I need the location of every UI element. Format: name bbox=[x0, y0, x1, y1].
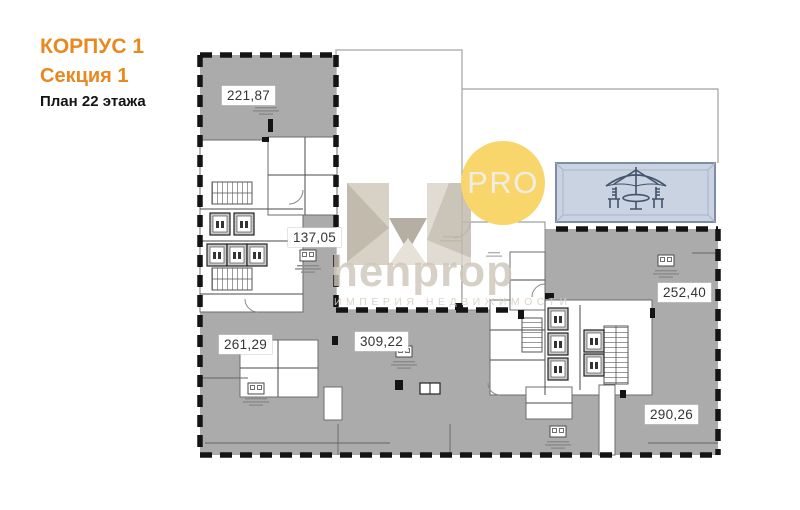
roof-outline bbox=[462, 89, 718, 163]
floor-plan-page: КОРПУС 1 Секция 1 План 22 этажа bbox=[0, 0, 800, 510]
open-void bbox=[336, 50, 462, 310]
floor-plan-drawing bbox=[0, 0, 800, 510]
counter-detail bbox=[420, 383, 440, 394]
area-label: 290,26 bbox=[645, 405, 698, 424]
area-label: 221,87 bbox=[222, 86, 275, 105]
area-label: 252,40 bbox=[658, 283, 711, 302]
terrace bbox=[556, 163, 715, 222]
area-label: 309,22 bbox=[355, 332, 408, 351]
area-label: 137,05 bbox=[288, 228, 341, 247]
area-label: 261,29 bbox=[219, 335, 272, 354]
